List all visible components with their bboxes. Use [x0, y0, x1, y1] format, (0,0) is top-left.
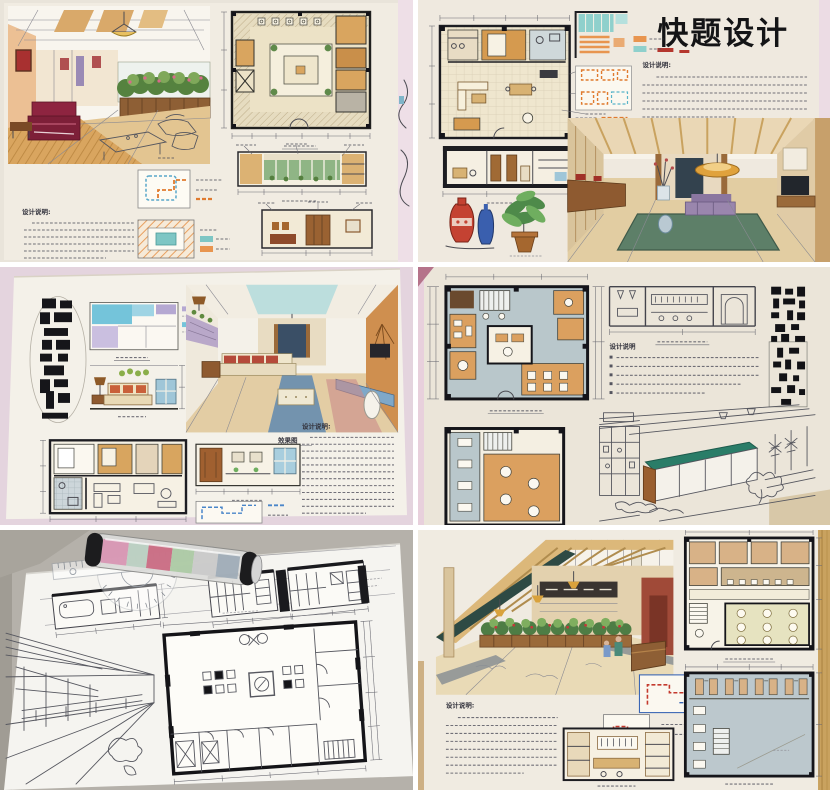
lobby-perspective-rendering	[8, 6, 210, 164]
column	[444, 568, 454, 657]
floor-plan-level2	[446, 428, 564, 525]
plan-rooms-right	[336, 16, 366, 112]
floor-plan	[221, 12, 370, 149]
stairs	[713, 728, 729, 754]
pink-backdrop-strip	[398, 0, 413, 262]
notes-heading: 设计说明:	[446, 701, 474, 710]
stairs	[689, 603, 707, 623]
lobby-board-rendering: 设计说明:	[0, 0, 413, 262]
photo-ink-drafting-sheet	[0, 530, 413, 790]
porcelain-stool	[658, 215, 672, 233]
pink-backdrop-strip	[418, 267, 424, 525]
table-edge	[813, 118, 830, 262]
green-rug	[618, 214, 780, 250]
plan-rooms-left	[236, 40, 254, 92]
photo-hotel-lobby-board: 设计说明:	[0, 0, 413, 262]
elevation-b	[258, 202, 372, 256]
notes-heading: 设计说明:	[302, 422, 331, 431]
living-room-board: 效果图	[0, 267, 413, 525]
living-room-perspective	[568, 118, 815, 262]
svg-text:效果图: 效果图	[278, 435, 298, 444]
stylized-title-lettering: 快题设计	[657, 16, 789, 53]
stairs	[480, 291, 510, 311]
floor-plan	[40, 440, 186, 522]
bar-section	[564, 728, 674, 786]
notes-heading: 设计说明:	[642, 60, 670, 69]
notes-heading: 设计说明	[610, 342, 636, 351]
hallway-perspective-rendering: 效果图	[186, 285, 398, 446]
photo-living-room-board: 效果图	[0, 267, 413, 525]
board-title: 快题设计	[657, 16, 789, 52]
wood-table-edge	[818, 530, 830, 790]
pink-backdrop-strip	[819, 0, 830, 120]
floor-plan-level2	[685, 664, 822, 784]
red-sofa	[28, 102, 80, 140]
teahouse-board: 设计说明	[418, 267, 830, 525]
photo-collage: 设计说明: 快题设计	[0, 0, 830, 790]
cafe-board: 设计说明:	[418, 530, 830, 790]
photo-quick-sketch-design-board: 快题设计	[418, 0, 830, 262]
notes-heading: 设计说明:	[22, 207, 51, 216]
quick-design-board: 快题设计	[418, 0, 830, 262]
stairs	[484, 432, 512, 450]
floor-plan-level1	[685, 530, 822, 662]
photo-teahouse-bar-board: 设计说明	[418, 267, 830, 525]
photo-cafe-restaurant-board: 设计说明:	[418, 530, 830, 790]
drafting-sheet	[0, 530, 413, 790]
floor-plan-level1	[427, 274, 605, 414]
purple-sofa	[685, 194, 735, 215]
